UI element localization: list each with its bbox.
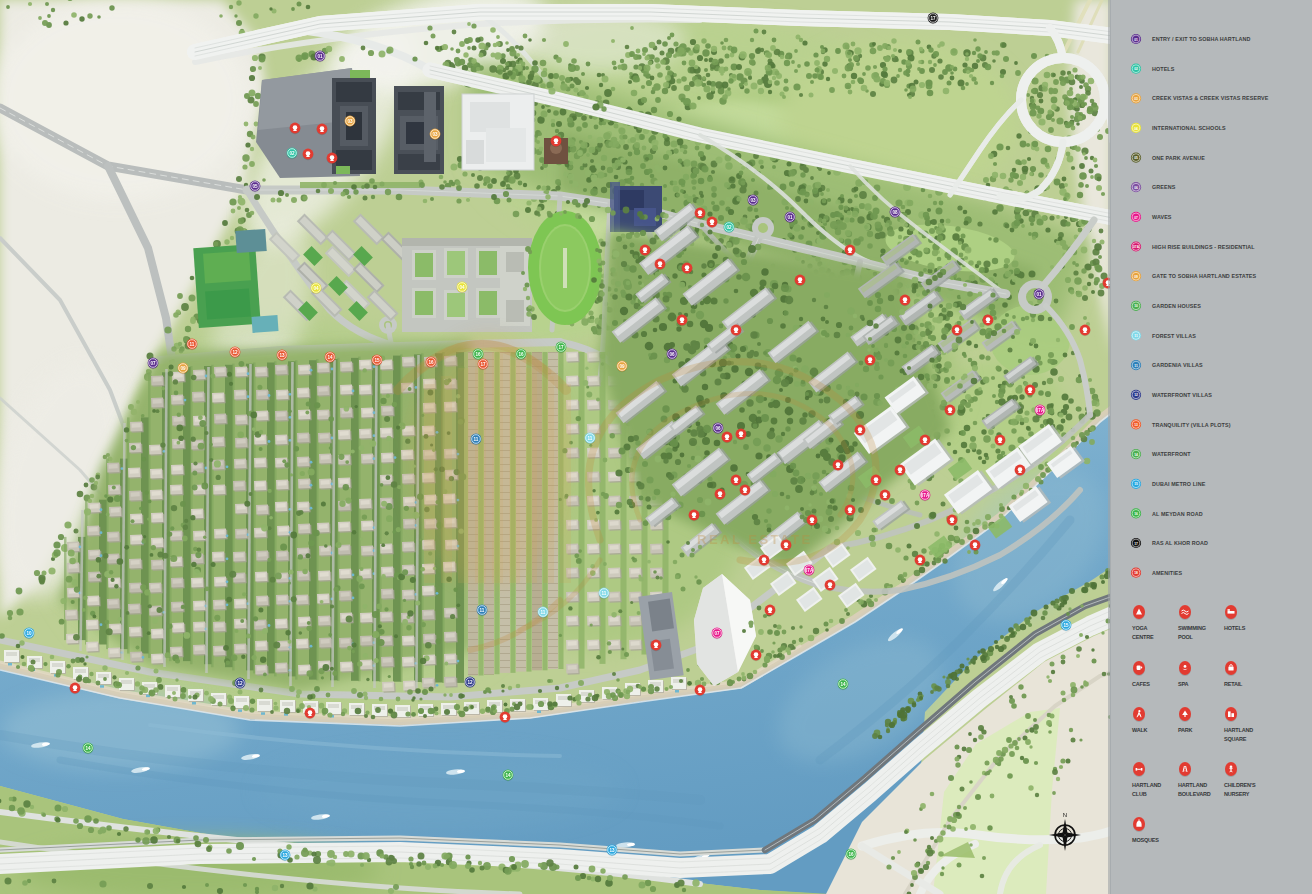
svg-text:12: 12 xyxy=(1134,393,1138,397)
svg-text:11: 11 xyxy=(588,436,593,441)
svg-text:CENTRE: CENTRE xyxy=(1132,634,1154,640)
svg-text:01: 01 xyxy=(1134,38,1138,42)
svg-text:07A: 07A xyxy=(1133,245,1140,249)
svg-text:GREENS: GREENS xyxy=(1152,184,1176,190)
svg-text:02: 02 xyxy=(1134,67,1138,71)
svg-text:GARDEN HOUSES: GARDEN HOUSES xyxy=(1152,303,1201,309)
svg-text:01: 01 xyxy=(1036,292,1042,297)
svg-text:07: 07 xyxy=(714,631,720,636)
svg-text:03: 03 xyxy=(1134,97,1138,101)
svg-text:04: 04 xyxy=(1134,127,1138,131)
svg-text:05: 05 xyxy=(252,184,258,189)
svg-text:06: 06 xyxy=(669,352,675,357)
svg-text:10: 10 xyxy=(26,631,32,636)
svg-text:CLUB: CLUB xyxy=(1132,791,1147,797)
svg-text:04: 04 xyxy=(313,286,319,291)
svg-text:11: 11 xyxy=(1134,334,1138,338)
svg-text:16: 16 xyxy=(428,360,434,365)
svg-text:08: 08 xyxy=(892,210,898,215)
svg-text:11: 11 xyxy=(190,342,195,347)
svg-text:PARK: PARK xyxy=(1178,727,1193,733)
svg-text:WALK: WALK xyxy=(1132,727,1148,733)
svg-text:03: 03 xyxy=(432,132,438,137)
svg-text:14: 14 xyxy=(1134,453,1138,457)
svg-text:DUBAI METRO LINE: DUBAI METRO LINE xyxy=(1152,481,1206,487)
svg-text:SQUARE: SQUARE xyxy=(1224,736,1247,742)
svg-text:12: 12 xyxy=(237,681,243,686)
svg-text:AMENITIES: AMENITIES xyxy=(1152,570,1183,576)
svg-text:HARTLAND: HARTLAND xyxy=(1178,782,1207,788)
svg-text:15: 15 xyxy=(374,358,380,363)
svg-text:BOULEVARD: BOULEVARD xyxy=(1178,791,1211,797)
svg-text:HARTLAND: HARTLAND xyxy=(1132,782,1161,788)
svg-text:CHILDREN'S: CHILDREN'S xyxy=(1224,782,1256,788)
svg-text:16: 16 xyxy=(475,352,481,357)
svg-text:TRANQUILITY (VILLA PLOTS): TRANQUILITY (VILLA PLOTS) xyxy=(1152,422,1231,428)
svg-text:ONE PARK AVENUE: ONE PARK AVENUE xyxy=(1152,155,1205,161)
svg-text:14: 14 xyxy=(85,746,91,751)
svg-text:GARDENIA VILLAS: GARDENIA VILLAS xyxy=(1152,362,1203,368)
svg-text:MOSQUES: MOSQUES xyxy=(1132,837,1159,843)
svg-text:13: 13 xyxy=(1134,423,1138,427)
svg-text:SWIMMING: SWIMMING xyxy=(1178,625,1206,631)
svg-text:FOREST VILLAS: FOREST VILLAS xyxy=(1152,333,1196,339)
svg-text:14: 14 xyxy=(840,682,846,687)
svg-text:14: 14 xyxy=(505,773,511,778)
svg-text:NURSERY: NURSERY xyxy=(1224,791,1250,797)
svg-text:SPA: SPA xyxy=(1178,681,1189,687)
svg-text:01: 01 xyxy=(787,215,793,220)
svg-text:12: 12 xyxy=(467,680,473,685)
svg-text:CREEK VISTAS & CREEK VISTAS RE: CREEK VISTAS & CREEK VISTAS RESERVE xyxy=(1152,95,1269,101)
svg-text:03: 03 xyxy=(347,119,353,124)
svg-text:13: 13 xyxy=(279,353,285,358)
svg-text:16: 16 xyxy=(518,352,524,357)
svg-text:16: 16 xyxy=(848,852,854,857)
svg-text:01: 01 xyxy=(317,54,323,59)
svg-text:07A: 07A xyxy=(921,493,930,498)
svg-text:WATERFRONT VILLAS: WATERFRONT VILLAS xyxy=(1152,392,1212,398)
svg-text:INTERNATIONAL SCHOOLS: INTERNATIONAL SCHOOLS xyxy=(1152,125,1226,131)
svg-text:WAVES: WAVES xyxy=(1152,214,1172,220)
svg-text:09: 09 xyxy=(619,364,625,369)
svg-text:07: 07 xyxy=(1134,216,1138,220)
svg-text:07A: 07A xyxy=(1036,408,1045,413)
svg-text:13: 13 xyxy=(282,853,288,858)
svg-text:02: 02 xyxy=(289,151,295,156)
svg-text:HARTLAND: HARTLAND xyxy=(1224,727,1253,733)
svg-text:06: 06 xyxy=(715,426,721,431)
svg-text:RAS AL KHOR ROAD: RAS AL KHOR ROAD xyxy=(1152,540,1208,546)
svg-text:YOGA: YOGA xyxy=(1132,625,1148,631)
svg-text:CAFES: CAFES xyxy=(1132,681,1150,687)
svg-text:07: 07 xyxy=(150,361,156,366)
svg-text:11: 11 xyxy=(474,437,479,442)
svg-text:16: 16 xyxy=(1134,512,1138,516)
svg-text:15: 15 xyxy=(1134,482,1138,486)
svg-text:HOTELS: HOTELS xyxy=(1224,625,1246,631)
svg-text:11: 11 xyxy=(1134,364,1138,368)
svg-text:14: 14 xyxy=(327,355,333,360)
svg-text:11: 11 xyxy=(602,591,607,596)
svg-text:GATE TO SOBHA HARTLAND ESTATES: GATE TO SOBHA HARTLAND ESTATES xyxy=(1152,273,1257,279)
svg-text:RETAIL: RETAIL xyxy=(1224,681,1243,687)
svg-text:17: 17 xyxy=(1134,542,1138,546)
svg-text:17: 17 xyxy=(558,345,564,350)
svg-text:03: 03 xyxy=(750,198,756,203)
svg-text:ENTRY / EXIT TO SOBHA HARTLAND: ENTRY / EXIT TO SOBHA HARTLAND xyxy=(1152,36,1251,42)
svg-text:05: 05 xyxy=(1134,156,1138,160)
svg-text:09: 09 xyxy=(180,366,186,371)
svg-text:N: N xyxy=(1063,812,1067,818)
svg-text:17: 17 xyxy=(480,362,486,367)
svg-text:17: 17 xyxy=(930,16,936,21)
svg-text:HIGH RISE BUILDINGS - RESIDENT: HIGH RISE BUILDINGS - RESIDENTIAL xyxy=(1152,244,1255,250)
svg-text:12: 12 xyxy=(232,350,238,355)
svg-text:15: 15 xyxy=(1063,623,1069,628)
svg-text:WATERFRONT: WATERFRONT xyxy=(1152,451,1191,457)
svg-text:REAL ESTATE: REAL ESTATE xyxy=(697,532,813,547)
svg-text:HOTELS: HOTELS xyxy=(1152,66,1175,72)
svg-text:AL MEYDAN ROAD: AL MEYDAN ROAD xyxy=(1152,511,1203,517)
svg-text:13: 13 xyxy=(609,848,615,853)
svg-text:04: 04 xyxy=(459,285,465,290)
svg-text:10: 10 xyxy=(1134,304,1138,308)
svg-text:07A: 07A xyxy=(805,568,814,573)
svg-text:02: 02 xyxy=(726,225,732,230)
svg-text:06: 06 xyxy=(1134,186,1138,190)
svg-text:11: 11 xyxy=(541,610,546,615)
svg-text:18: 18 xyxy=(1134,571,1138,575)
svg-text:11: 11 xyxy=(480,608,485,613)
svg-text:POOL: POOL xyxy=(1178,634,1194,640)
svg-text:09: 09 xyxy=(1134,275,1138,279)
